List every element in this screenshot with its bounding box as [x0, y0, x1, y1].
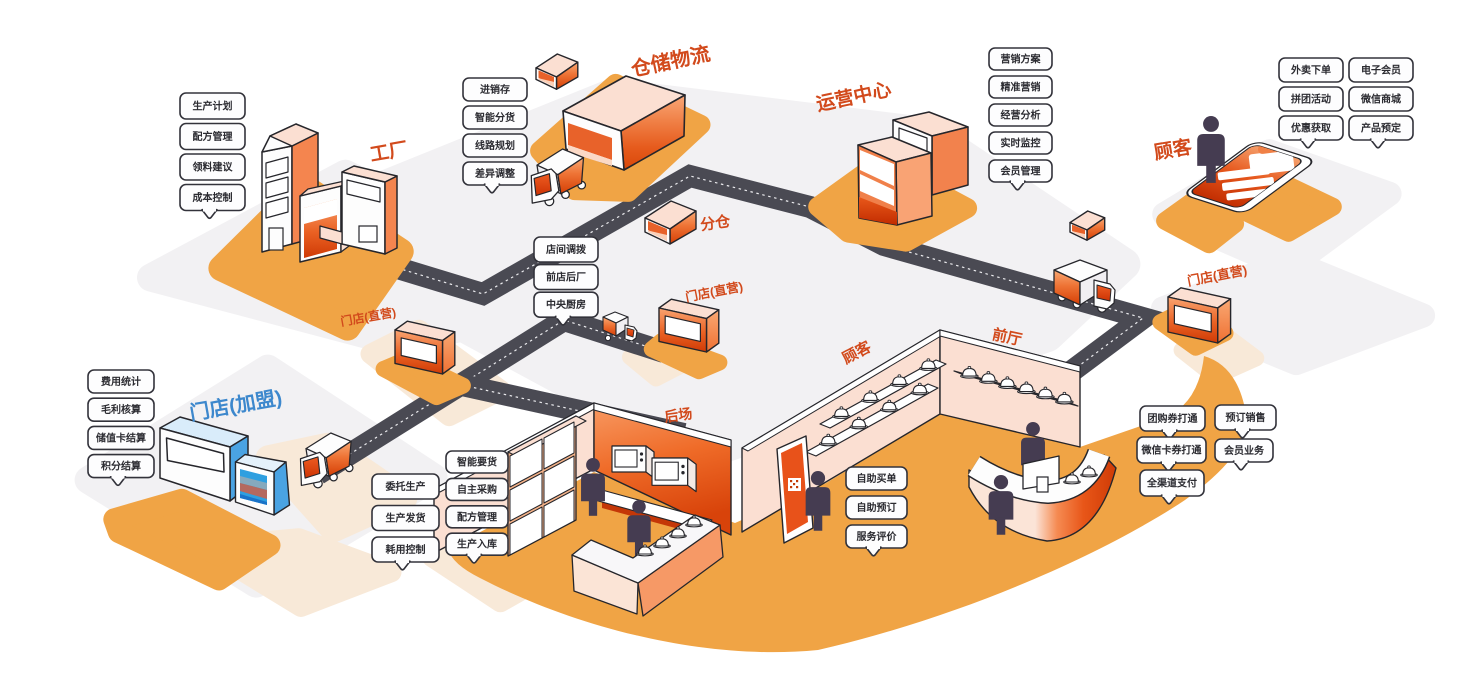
svg-text:产品预定: 产品预定	[1361, 122, 1401, 135]
svg-text:营销方案: 营销方案	[1001, 53, 1042, 66]
svg-text:全渠道支付: 全渠道支付	[1146, 477, 1197, 490]
svg-text:服务评价: 服务评价	[857, 530, 898, 543]
svg-text:储值卡结算: 储值卡结算	[95, 431, 146, 444]
svg-text:微信商城: 微信商城	[1360, 93, 1401, 106]
svg-text:费用统计: 费用统计	[101, 375, 141, 388]
svg-text:团购券打通: 团购券打通	[1148, 412, 1198, 425]
svg-text:生产发货: 生产发货	[386, 512, 426, 525]
svg-text:毛利核算: 毛利核算	[101, 403, 141, 416]
svg-text:自主采购: 自主采购	[457, 483, 497, 496]
svg-text:生产计划: 生产计划	[193, 100, 233, 113]
svg-text:中央厨房: 中央厨房	[546, 298, 586, 311]
svg-text:外卖下单: 外卖下单	[1290, 64, 1331, 77]
svg-text:自助买单: 自助买单	[857, 472, 897, 485]
svg-text:线路规划: 线路规划	[475, 139, 515, 152]
svg-text:自助预订: 自助预订	[857, 501, 897, 514]
svg-text:智能要货: 智能要货	[457, 456, 497, 469]
svg-text:会员业务: 会员业务	[1224, 444, 1265, 457]
svg-text:拼团活动: 拼团活动	[1291, 93, 1331, 106]
svg-text:优惠获取: 优惠获取	[1291, 122, 1332, 135]
svg-text:前店后厂: 前店后厂	[546, 271, 586, 284]
svg-text:电子会员: 电子会员	[1361, 64, 1401, 77]
svg-text:委托生产: 委托生产	[385, 480, 426, 493]
svg-text:会员管理: 会员管理	[1001, 165, 1041, 178]
svg-text:成本控制: 成本控制	[193, 191, 233, 204]
svg-text:预订销售: 预订销售	[1226, 411, 1266, 424]
svg-text:进销存: 进销存	[480, 83, 510, 96]
svg-text:店间调拨: 店间调拨	[546, 243, 587, 256]
svg-text:领料建议: 领料建议	[193, 161, 234, 174]
svg-text:配方管理: 配方管理	[457, 510, 497, 523]
svg-text:生产入库: 生产入库	[457, 538, 497, 551]
svg-text:积分结算: 积分结算	[101, 460, 141, 473]
svg-text:精准营销: 精准营销	[1001, 81, 1041, 94]
svg-text:配方管理: 配方管理	[193, 130, 233, 143]
svg-text:差异调整: 差异调整	[475, 167, 515, 180]
svg-text:实时监控: 实时监控	[1001, 137, 1041, 150]
svg-text:智能分货: 智能分货	[475, 111, 515, 124]
svg-text:耗用控制: 耗用控制	[386, 543, 426, 556]
svg-text:经营分析: 经营分析	[1001, 109, 1041, 122]
svg-text:微信卡券打通: 微信卡券打通	[1141, 444, 1202, 457]
